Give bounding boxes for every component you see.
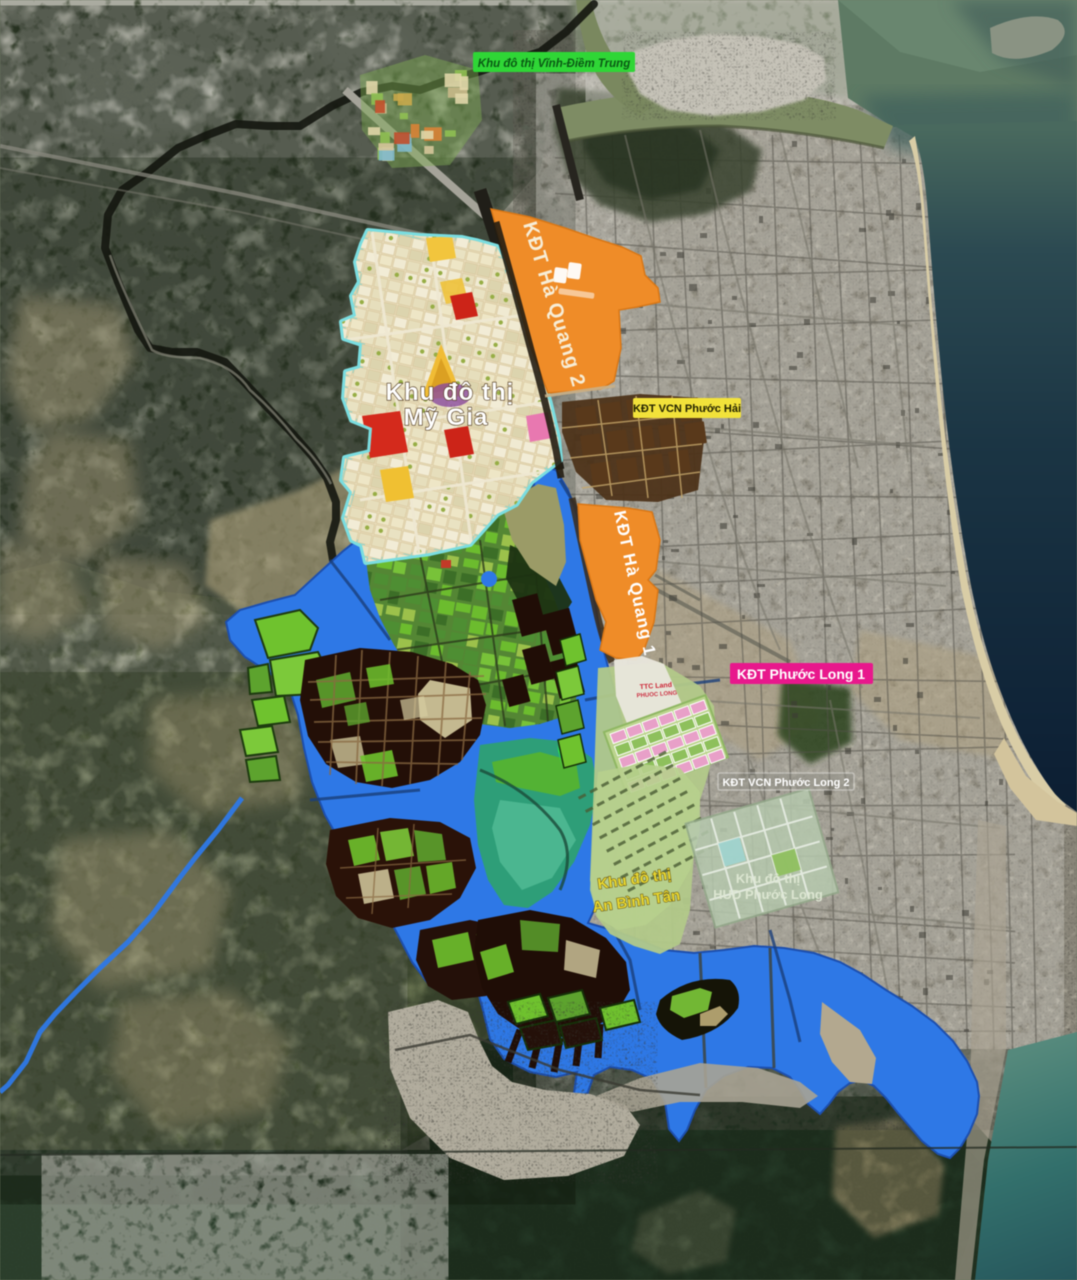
svg-text:Mỹ Gia: Mỹ Gia <box>404 404 489 431</box>
svg-text:KĐT Phước Long 1: KĐT Phước Long 1 <box>737 666 865 682</box>
svg-text:Khu đô thị: Khu đô thị <box>386 379 515 406</box>
svg-text:HUD Phước Long: HUD Phước Long <box>713 887 823 902</box>
svg-text:Khu đô thị: Khu đô thị <box>736 871 800 886</box>
svg-text:KĐT VCN Phước Hải: KĐT VCN Phước Hải <box>633 403 741 415</box>
svg-text:KĐT VCN Phước Long 2: KĐT VCN Phước Long 2 <box>722 777 849 789</box>
svg-text:Khu đô thị Vĩnh-Điềm Trung: Khu đô thị Vĩnh-Điềm Trung <box>478 58 630 70</box>
